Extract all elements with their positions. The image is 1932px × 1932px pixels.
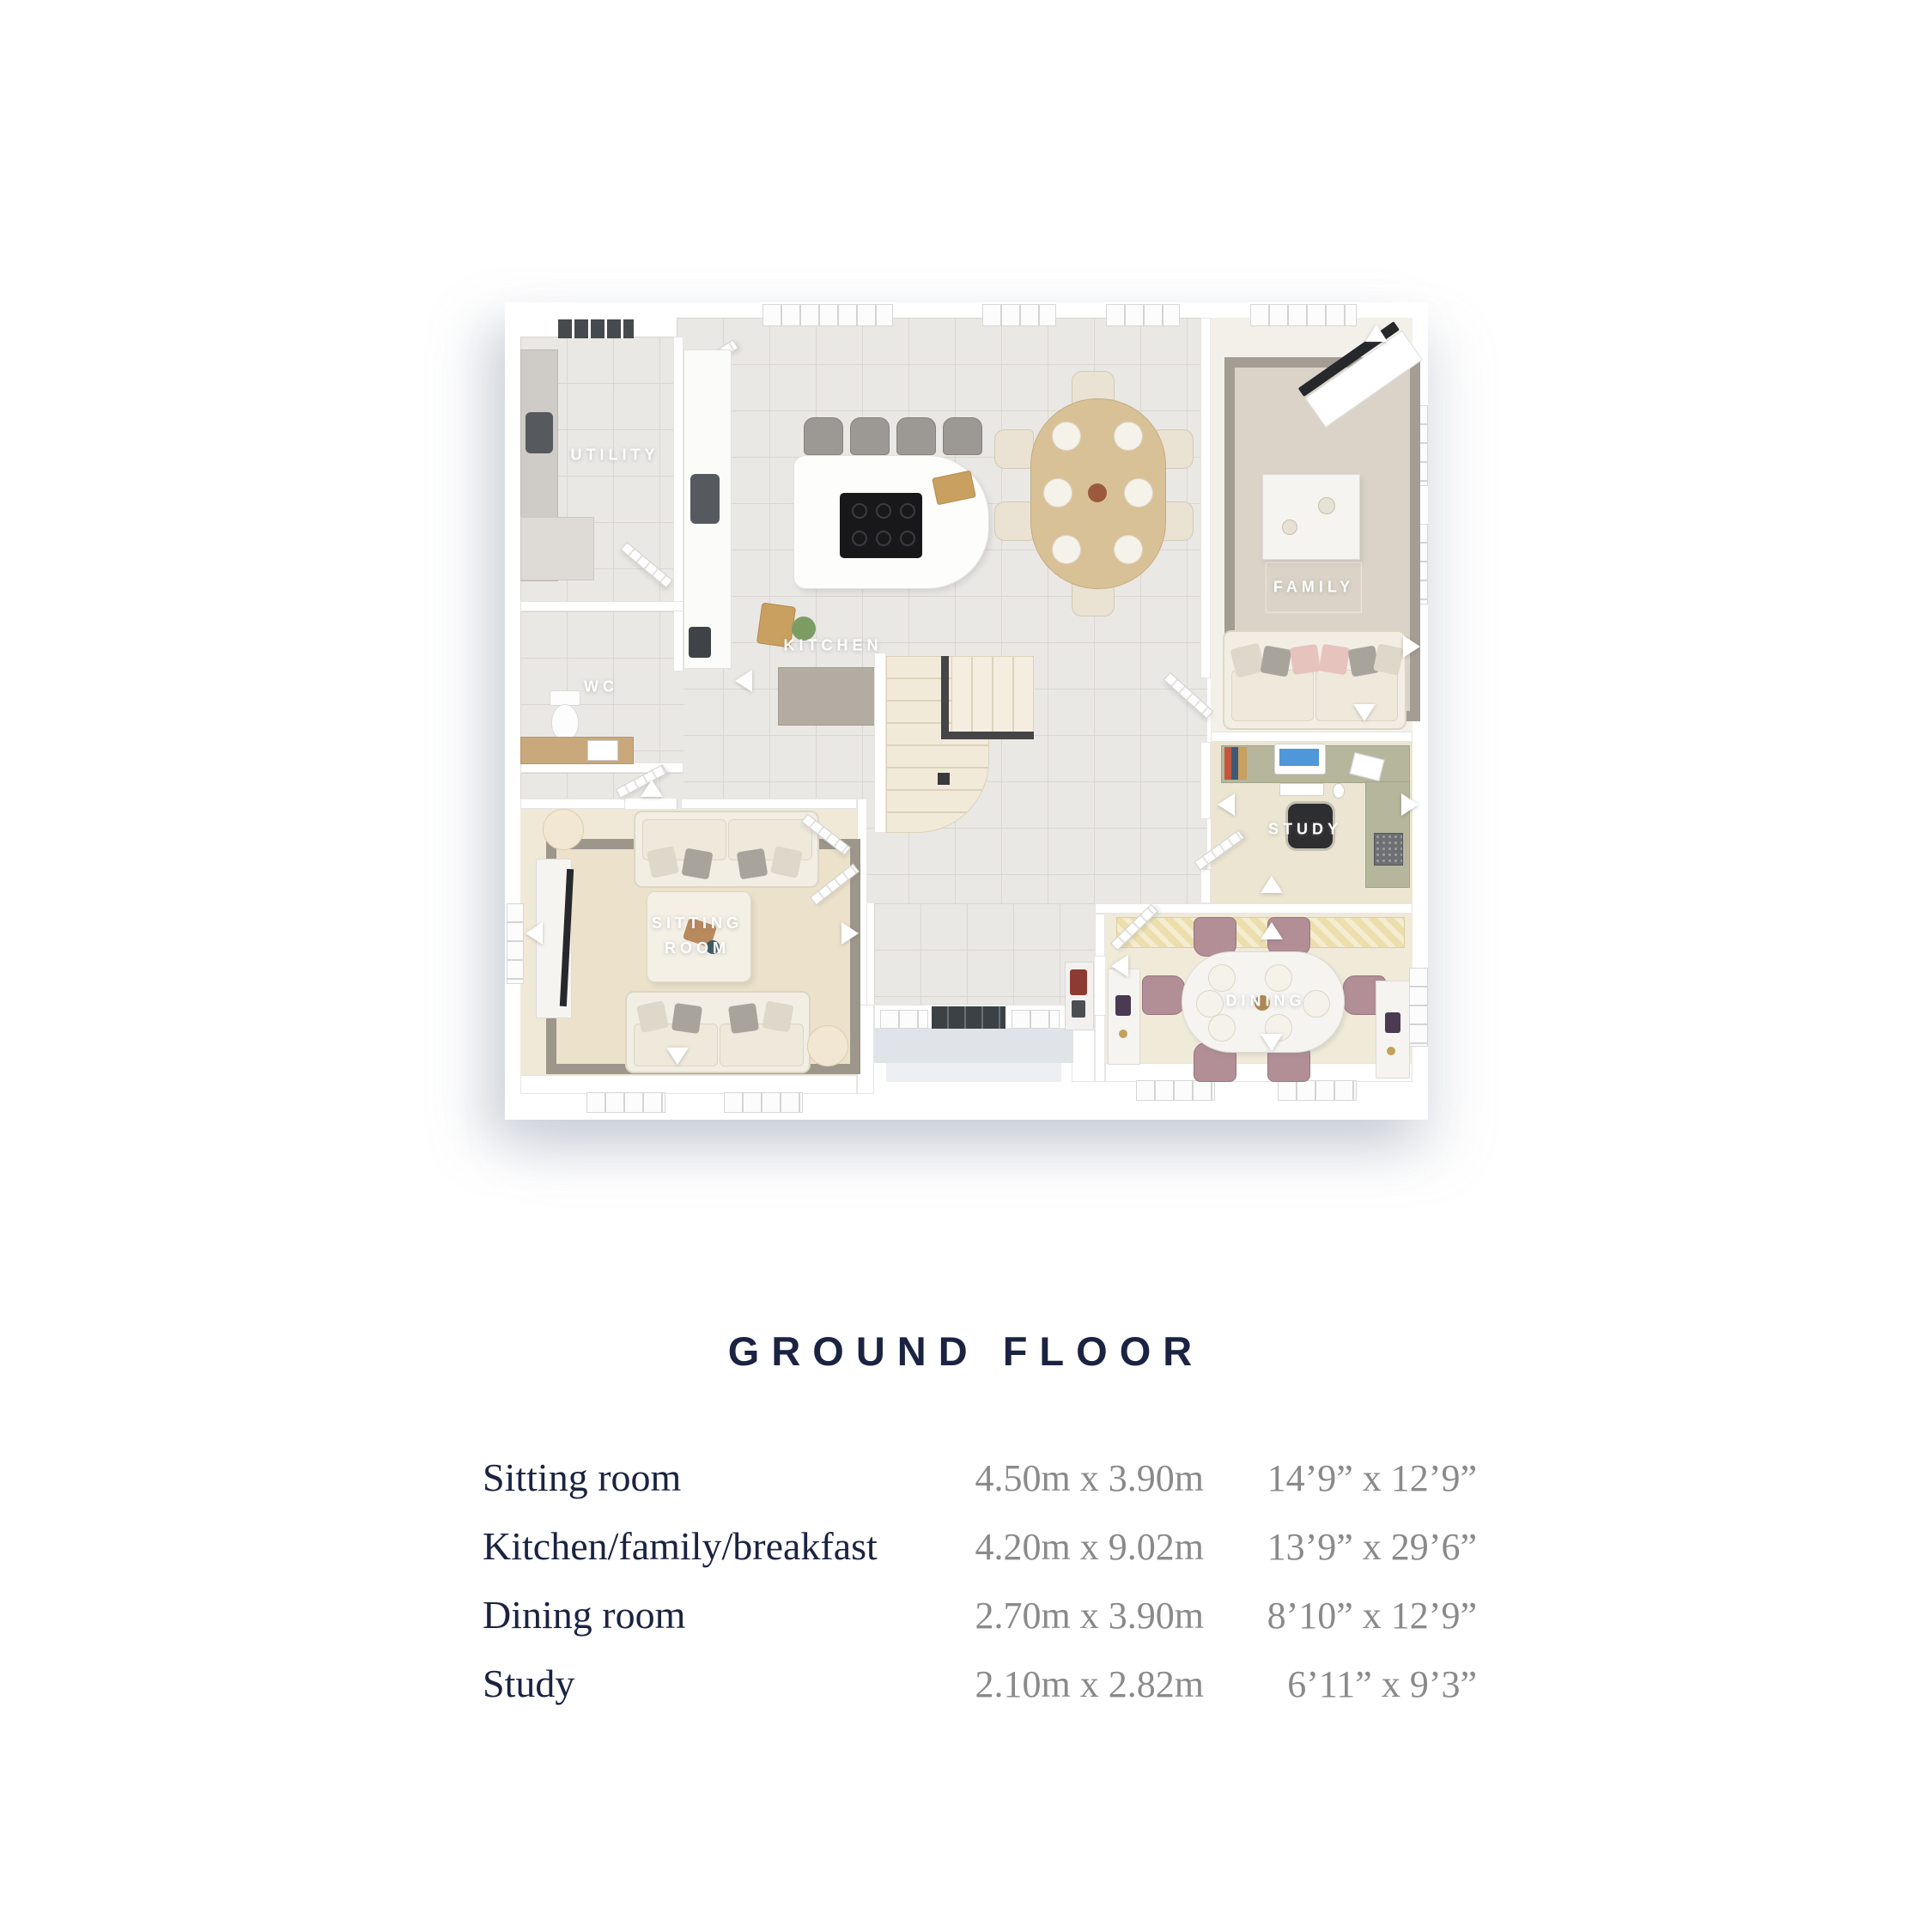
sitting-bottom-window-1 [586, 1092, 665, 1113]
porch-step [874, 1029, 1073, 1063]
stair-handrail-vertical [941, 656, 949, 739]
dining-label: DINING [1226, 989, 1306, 1014]
kitchen-window-2 [982, 304, 1056, 326]
sitting-sofa-top [634, 811, 819, 888]
wc-basin [587, 740, 618, 761]
coffee-machine [689, 627, 711, 658]
utility-sink [526, 412, 553, 453]
sitting-room-label: SITTING ROOM [629, 911, 766, 961]
family-label: FAMILY [1266, 562, 1362, 613]
dining-left-wall-a [1095, 914, 1105, 957]
room-name: Dining room [483, 1592, 946, 1637]
study-left-arrow-icon [1218, 793, 1235, 816]
room-size-metric: 2.10m x 2.82m [946, 1662, 1204, 1706]
room-size-imperial: 8’10” x 12’9” [1204, 1594, 1477, 1637]
kitchen-window-1 [762, 304, 893, 326]
room-name: Sitting room [483, 1455, 946, 1500]
dining-left-wall-b [1095, 1015, 1105, 1082]
family-hall-wall [1200, 318, 1211, 678]
family-study-arrow-icon [1353, 704, 1376, 721]
dining-console-left [1108, 969, 1140, 1065]
island-hob [840, 493, 922, 558]
room-size-imperial: 6’11” x 9’3” [1204, 1662, 1477, 1706]
study-hall-wall-b [1200, 869, 1211, 903]
utility-label: UTILITY [571, 443, 659, 468]
sitting-top-wall-b [681, 799, 857, 809]
kitchen-label: KITCHEN [784, 634, 883, 659]
room-size-imperial: 13’9” x 29’6” [1204, 1525, 1477, 1569]
bar-stool [896, 417, 936, 455]
study-hall-wall-a [1200, 742, 1211, 819]
bar-stool [850, 417, 890, 455]
front-sidelight-left [880, 1010, 928, 1029]
dining-runner-arrow-icon [1261, 922, 1283, 939]
dimensions-table: Sitting room 4.50m x 3.90m 14’9” x 12’9”… [483, 1455, 1477, 1729]
table-row: Dining room 2.70m x 3.90m 8’10” x 12’9” [483, 1592, 1477, 1637]
side-table-round-bottom [807, 1025, 848, 1066]
wc-label: WC [584, 675, 618, 700]
breakfast-table [1030, 398, 1166, 589]
kitchen-arrow-icon [735, 670, 752, 692]
family-sofa [1223, 630, 1406, 730]
study-monitor [1274, 744, 1326, 775]
vestibule-arrow-icon [641, 780, 663, 797]
study-mouse [1333, 783, 1345, 799]
porch-step-lower [886, 1063, 1061, 1082]
dining-bottom-wall [1105, 1063, 1413, 1082]
stair-handrail [941, 732, 1034, 739]
study-keyboard [1279, 783, 1324, 796]
study-books [1224, 747, 1247, 780]
sitting-left-arrow-icon [526, 922, 543, 945]
stair-newel [938, 773, 950, 785]
study-label: STUDY [1268, 817, 1342, 842]
table-row: Study 2.10m x 2.82m 6’11” x 9’3” [483, 1661, 1477, 1706]
utility-wc-wall [520, 601, 683, 611]
dining-side-window [1409, 968, 1428, 1047]
study-cabinet [1374, 833, 1403, 866]
room-size-metric: 4.20m x 9.02m [946, 1525, 1204, 1569]
breakfast-chair [994, 429, 1034, 469]
utility-kitchen-wall [673, 337, 683, 671]
hall-floor [874, 903, 1095, 1005]
sitting-window-arrow-icon [666, 1048, 689, 1065]
family-top-window [1250, 304, 1357, 326]
front-sidelight-right [1012, 1010, 1060, 1029]
toilet-bowl [551, 704, 579, 740]
sitting-bottom-window-2 [724, 1092, 803, 1113]
dining-door-arrow-icon [1111, 955, 1128, 977]
study-right-arrow-icon [1401, 793, 1419, 816]
side-table-round-top [543, 809, 584, 850]
family-coffee-table [1262, 474, 1360, 560]
sitting-sofa-bottom [625, 991, 811, 1073]
sitting-side-window [507, 903, 524, 984]
dining-hall-arrow-icon [1261, 876, 1283, 893]
utility-appliance [520, 517, 594, 580]
bar-stool [804, 417, 843, 455]
room-size-metric: 2.70m x 3.90m [946, 1594, 1204, 1637]
stairs-upper-flight [951, 656, 1034, 737]
dining-bottom-window-1 [1136, 1080, 1215, 1101]
dining-console-right [1376, 981, 1410, 1078]
family-side-arrow-icon [1403, 635, 1420, 658]
table-row: Kitchen/family/breakfast 4.20m x 9.02m 1… [483, 1523, 1477, 1569]
drinks-trolley [1065, 962, 1094, 1030]
sitting-right-arrow-icon [841, 922, 859, 945]
floor-plan: UTILITY WC KITCHEN [505, 302, 1428, 1120]
stair-wall [874, 653, 886, 833]
utility-glazed-door [558, 319, 634, 338]
breakfast-chair [994, 501, 1034, 541]
front-door [932, 1006, 1005, 1029]
sitting-top-wall-a [520, 799, 625, 809]
family-arrow-icon [1365, 325, 1388, 342]
floorplan-page: UTILITY WC KITCHEN [0, 0, 1932, 1932]
page-title: GROUND FLOOR [0, 1327, 1932, 1375]
room-size-metric: 4.50m x 3.90m [946, 1456, 1204, 1500]
kitchen-back-counter [778, 667, 879, 726]
dining-bottom-window-2 [1278, 1080, 1357, 1101]
kitchen-window-3 [1106, 304, 1180, 326]
kitchen-sink [690, 474, 720, 524]
bar-stool [943, 417, 982, 455]
room-name: Kitchen/family/breakfast [483, 1523, 946, 1569]
room-name: Study [483, 1661, 946, 1706]
dining-window-arrow-icon [1261, 1034, 1283, 1051]
dining-chair [1142, 975, 1185, 1015]
room-size-imperial: 14’9” x 12’9” [1204, 1456, 1477, 1500]
family-study-wall [1211, 732, 1413, 742]
sitting-bottom-wall [520, 1075, 857, 1094]
table-row: Sitting room 4.50m x 3.90m 14’9” x 12’9” [483, 1455, 1477, 1500]
